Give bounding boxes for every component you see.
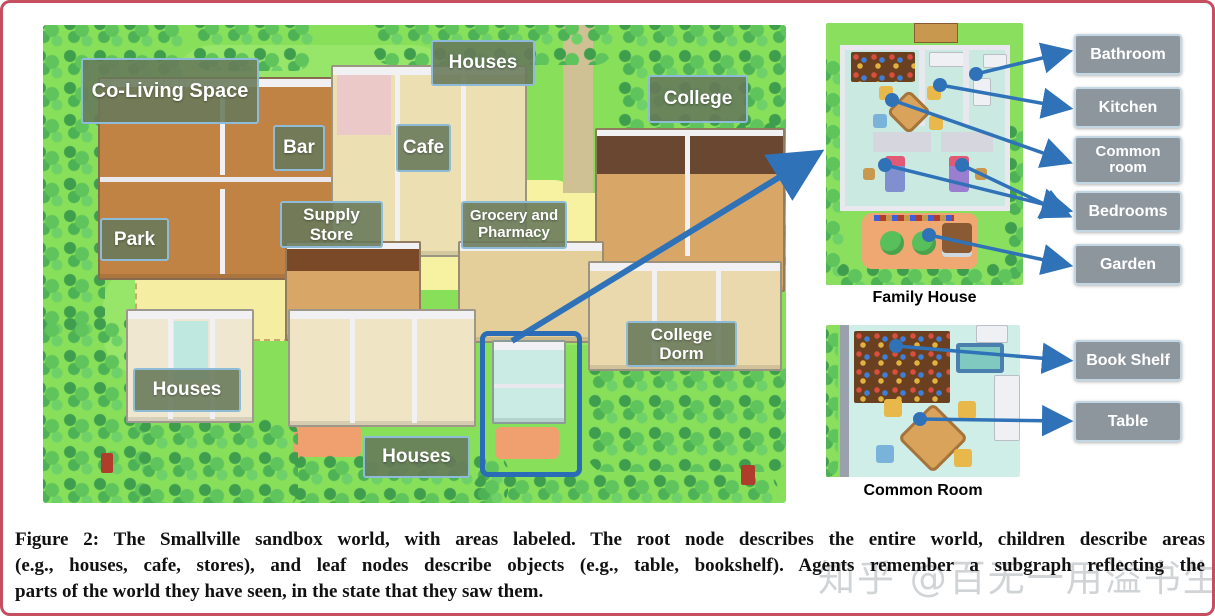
map-label-houses-bottom-left: Houses (133, 368, 241, 412)
forest-patch (43, 175, 105, 335)
garden-tree (880, 231, 904, 255)
caption-line-2: (e.g., houses, cafe, stores), and leaf n… (15, 553, 1205, 579)
map-label-college: College (648, 75, 748, 123)
map-label-houses-top: Houses (431, 40, 535, 86)
smallville-map: Co-Living Space Houses College Bar Cafe … (43, 25, 786, 503)
interior-wall (963, 50, 969, 126)
chair (954, 449, 972, 467)
bookshelf (851, 52, 915, 82)
bedroom-wall (941, 132, 993, 152)
caption-line-1: Figure 2: The Smallville sandbox world, … (15, 527, 1205, 553)
wall (840, 325, 849, 477)
building-grocery-pharmacy (458, 241, 604, 343)
figure-frame: Co-Living Space Houses College Bar Cafe … (0, 0, 1215, 616)
gazebo (942, 223, 972, 253)
map-label-supply-store: Supply Store (280, 201, 383, 248)
map-label-bar: Bar (273, 125, 325, 171)
family-house-floorplan (840, 45, 1010, 211)
room (597, 136, 783, 174)
chair (873, 114, 887, 128)
garden-tree (912, 231, 936, 255)
sink (976, 325, 1008, 343)
forest-patch (138, 417, 298, 503)
forest-patch (588, 360, 786, 472)
map-label-park: Park (100, 218, 169, 261)
family-house-inset (826, 23, 1023, 285)
bedroom-wall (873, 132, 931, 152)
callout-book-shelf: Book Shelf (1074, 340, 1182, 381)
bench-row (874, 215, 954, 221)
map-label-college-dorm: College Dorm (626, 321, 737, 367)
kitchen-counter (929, 52, 965, 67)
room (337, 75, 391, 135)
callout-garden: Garden (1074, 244, 1182, 285)
crates (914, 23, 958, 43)
family-house-highlight-rect (480, 331, 582, 477)
forest-patch (826, 325, 838, 477)
map-label-grocery-pharmacy: Grocery and Pharmacy (461, 201, 567, 249)
garden-area (862, 213, 978, 269)
interior-wall (100, 177, 348, 182)
red-door (741, 465, 755, 485)
map-label-co-living-space: Co-Living Space (81, 58, 259, 124)
callout-table: Table (1074, 401, 1182, 442)
interior-wall (220, 189, 225, 274)
common-room-inset (826, 325, 1020, 477)
interior-wall (350, 317, 355, 423)
nightstand (975, 168, 987, 180)
building-houses-bottom-center (288, 309, 476, 427)
shower (973, 78, 991, 106)
interior-wall (412, 317, 417, 423)
callout-bedrooms: Bedrooms (1074, 191, 1182, 232)
chair (884, 399, 902, 417)
map-label-cafe: Cafe (396, 124, 451, 172)
chair (879, 86, 893, 100)
interior-wall (685, 136, 690, 256)
map-label-houses-bottom-center: Houses (363, 436, 470, 478)
bed (949, 156, 969, 192)
bed (885, 156, 905, 192)
shelves (287, 249, 419, 271)
mailbox (101, 453, 113, 473)
figure-caption: Figure 2: The Smallville sandbox world, … (15, 527, 1205, 605)
chair (929, 116, 943, 130)
nightstand (863, 168, 875, 180)
chair (927, 86, 941, 100)
counter (994, 375, 1020, 441)
common-room-caption: Common Room (826, 482, 1020, 500)
callout-kitchen: Kitchen (1074, 87, 1182, 128)
callout-common-room: Common room (1074, 136, 1182, 184)
callout-bathroom: Bathroom (1074, 34, 1182, 75)
bookshelf (854, 331, 950, 403)
chair (958, 401, 976, 419)
chair (876, 445, 894, 463)
family-house-caption: Family House (826, 289, 1023, 307)
bathroom-desk (983, 54, 1007, 68)
rug (956, 343, 1004, 373)
caption-line-3: parts of the world they have seen, in th… (15, 579, 1205, 605)
